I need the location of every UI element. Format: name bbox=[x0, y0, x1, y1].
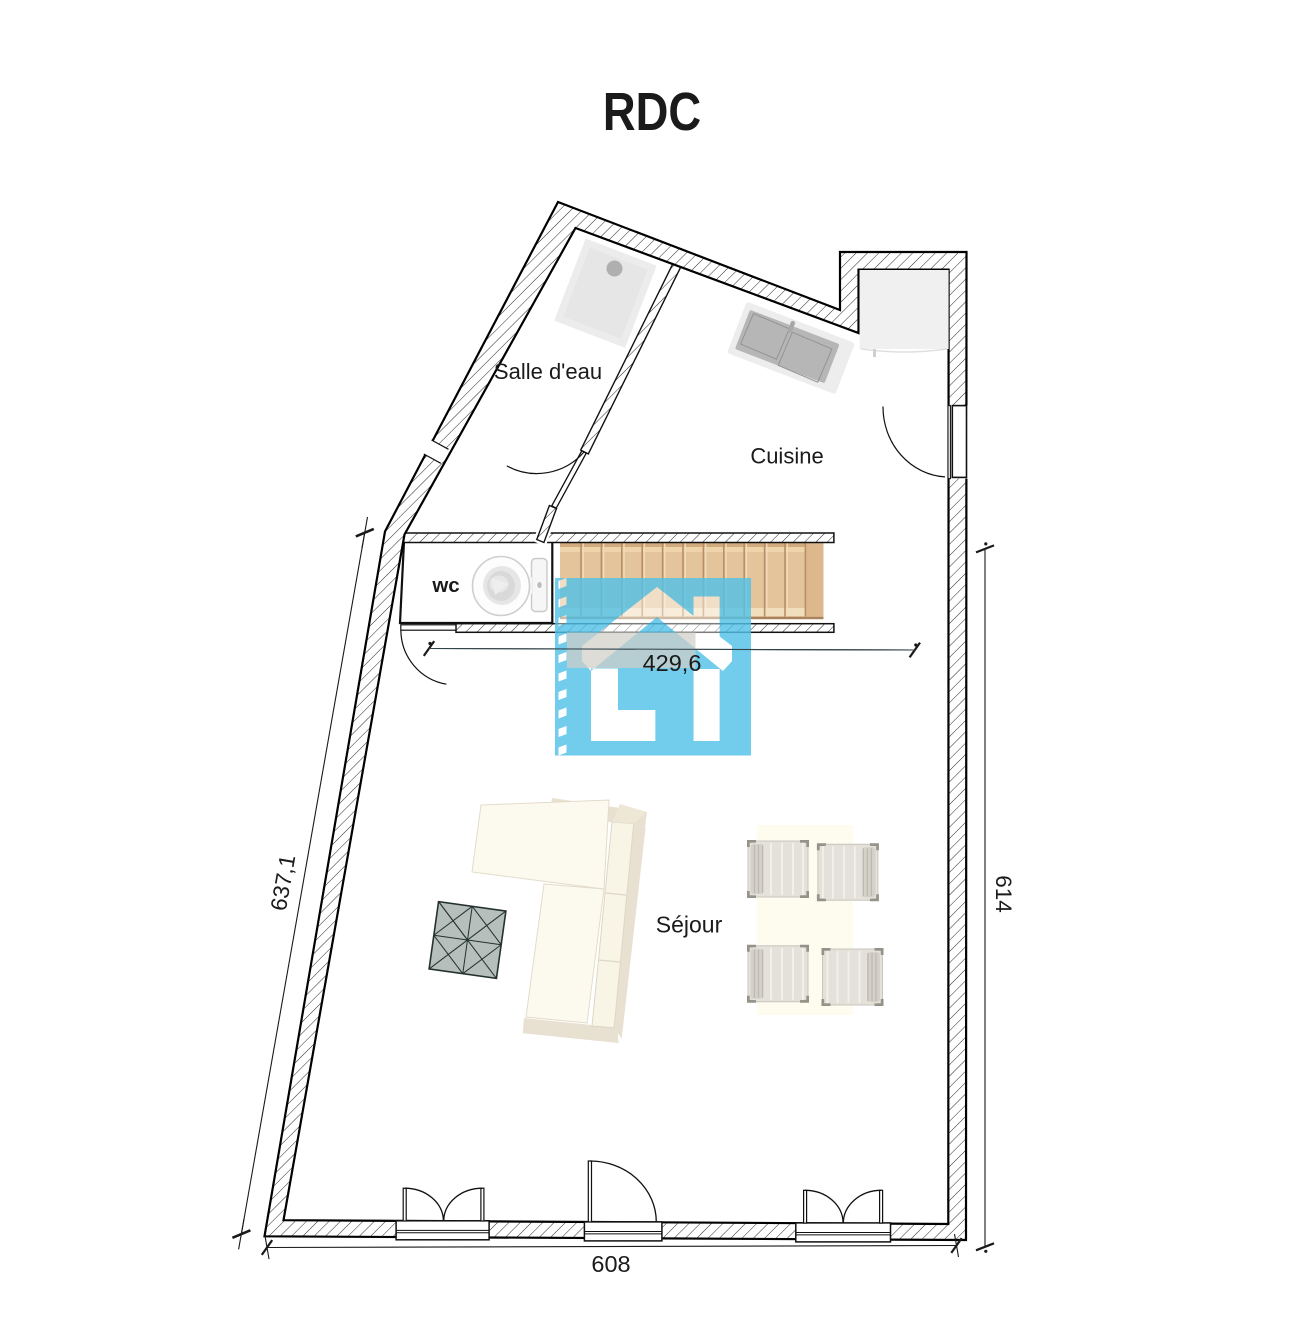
svg-text:Cuisine: Cuisine bbox=[750, 444, 823, 469]
svg-text:Séjour: Séjour bbox=[656, 912, 723, 938]
svg-text:429,6: 429,6 bbox=[643, 650, 702, 676]
svg-text:614: 614 bbox=[991, 875, 1016, 913]
svg-text:Salle d'eau: Salle d'eau bbox=[494, 359, 602, 384]
svg-text:wc: wc bbox=[431, 574, 459, 597]
svg-text:608: 608 bbox=[591, 1251, 630, 1277]
svg-text:RDC: RDC bbox=[603, 81, 701, 142]
